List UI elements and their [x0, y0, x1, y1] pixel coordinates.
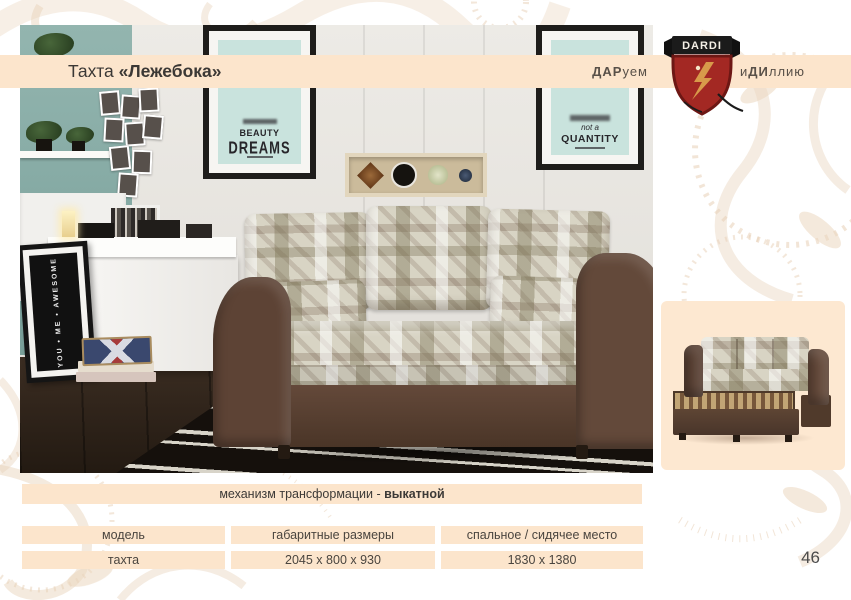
mini-sofa-arm-right: [808, 349, 829, 405]
spec-header-sleeping: спальное / сидячее место: [441, 526, 643, 544]
mini-sofa-arm-left: [684, 345, 703, 397]
spec-header-model: модель: [22, 526, 225, 544]
wall-shelf-bottom: [20, 151, 120, 158]
plant-pot: [72, 141, 85, 151]
spec-header-dimensions: габаритные размеры: [231, 526, 435, 544]
page-title: Тахта «Лежебока»: [68, 55, 222, 88]
brand-tagline-right: иДИллию: [740, 55, 850, 88]
sofa-leg: [278, 445, 290, 459]
brand-name: DARDI: [682, 40, 722, 52]
polaroid-photo: [142, 114, 164, 140]
desk-item: [138, 220, 180, 238]
mini-pillow-divider: [736, 339, 738, 371]
wall-niche: [345, 153, 487, 197]
mini-sofa-seat: [699, 369, 811, 391]
mini-sofa-leg: [679, 433, 686, 440]
tagline-left-bold: ДАР: [592, 64, 622, 79]
candle: [62, 211, 75, 237]
sofa-arm-left: [213, 277, 291, 447]
polaroid-photo: [132, 150, 153, 175]
poster-word-nota: not a: [581, 123, 599, 132]
tagline-right-bold: ДИ: [748, 64, 769, 79]
sofa-base: [266, 385, 596, 447]
brand-tagline-left: ДАРуем: [548, 55, 648, 88]
sofa-arm-right: [576, 253, 653, 449]
desk-item: [78, 223, 114, 238]
tagline-left-rest: уем: [622, 64, 648, 79]
mechanism-label: механизм трансформации -: [219, 487, 384, 501]
mechanism-thumbnail: [661, 301, 845, 470]
sage-clock-icon: [428, 165, 448, 185]
title-prefix: Тахта: [68, 61, 119, 81]
spec-value-sleeping: 1830 x 1380: [441, 551, 643, 569]
black-clock-icon: [391, 162, 417, 188]
desk-item: [186, 224, 212, 238]
pullout-bed-front: [673, 409, 799, 435]
catalog-page: BEAUTY DREAMS not a QUANTITY: [0, 0, 851, 600]
navy-clock-icon: [459, 169, 472, 182]
union-jack-box: [82, 336, 153, 366]
polaroid-photo: [103, 117, 124, 142]
brand-crest: DARDI: [660, 32, 744, 121]
mini-sofa-back: [701, 337, 809, 373]
diamond-clock-icon: [357, 162, 384, 189]
poster-beauty-dreams: BEAUTY DREAMS: [203, 25, 316, 179]
poster-word-dreams: DREAMS: [228, 137, 290, 157]
book: [76, 372, 156, 382]
polaroid-photo: [138, 87, 159, 112]
mechanism-value: выкатной: [384, 487, 445, 501]
poster-quantity: not a QUANTITY: [536, 25, 644, 170]
polaroid-photo: [99, 90, 121, 116]
mini-sofa-leg: [785, 435, 792, 442]
page-number: 46: [770, 548, 820, 568]
room-photo: BEAUTY DREAMS not a QUANTITY: [20, 25, 653, 473]
mini-pillow-divider: [772, 339, 774, 371]
sofa-back-pillow: [366, 206, 492, 310]
spec-value-dimensions: 2045 x 800 x 930: [231, 551, 435, 569]
polaroid-photo: [109, 145, 131, 171]
poster-word-quantity: QUANTITY: [561, 133, 619, 145]
mechanism-band: механизм трансформации - выкатной: [22, 484, 642, 504]
frame-words: YOU • ME • AWESOME: [50, 257, 65, 368]
sofa-leg: [576, 445, 588, 459]
mini-sofa-leg: [733, 435, 740, 442]
plant-pot: [36, 139, 52, 151]
tagline-right-rest: ллию: [769, 64, 805, 79]
spec-value-model: тахта: [22, 551, 225, 569]
title-model-name: «Лежебока»: [119, 61, 222, 81]
